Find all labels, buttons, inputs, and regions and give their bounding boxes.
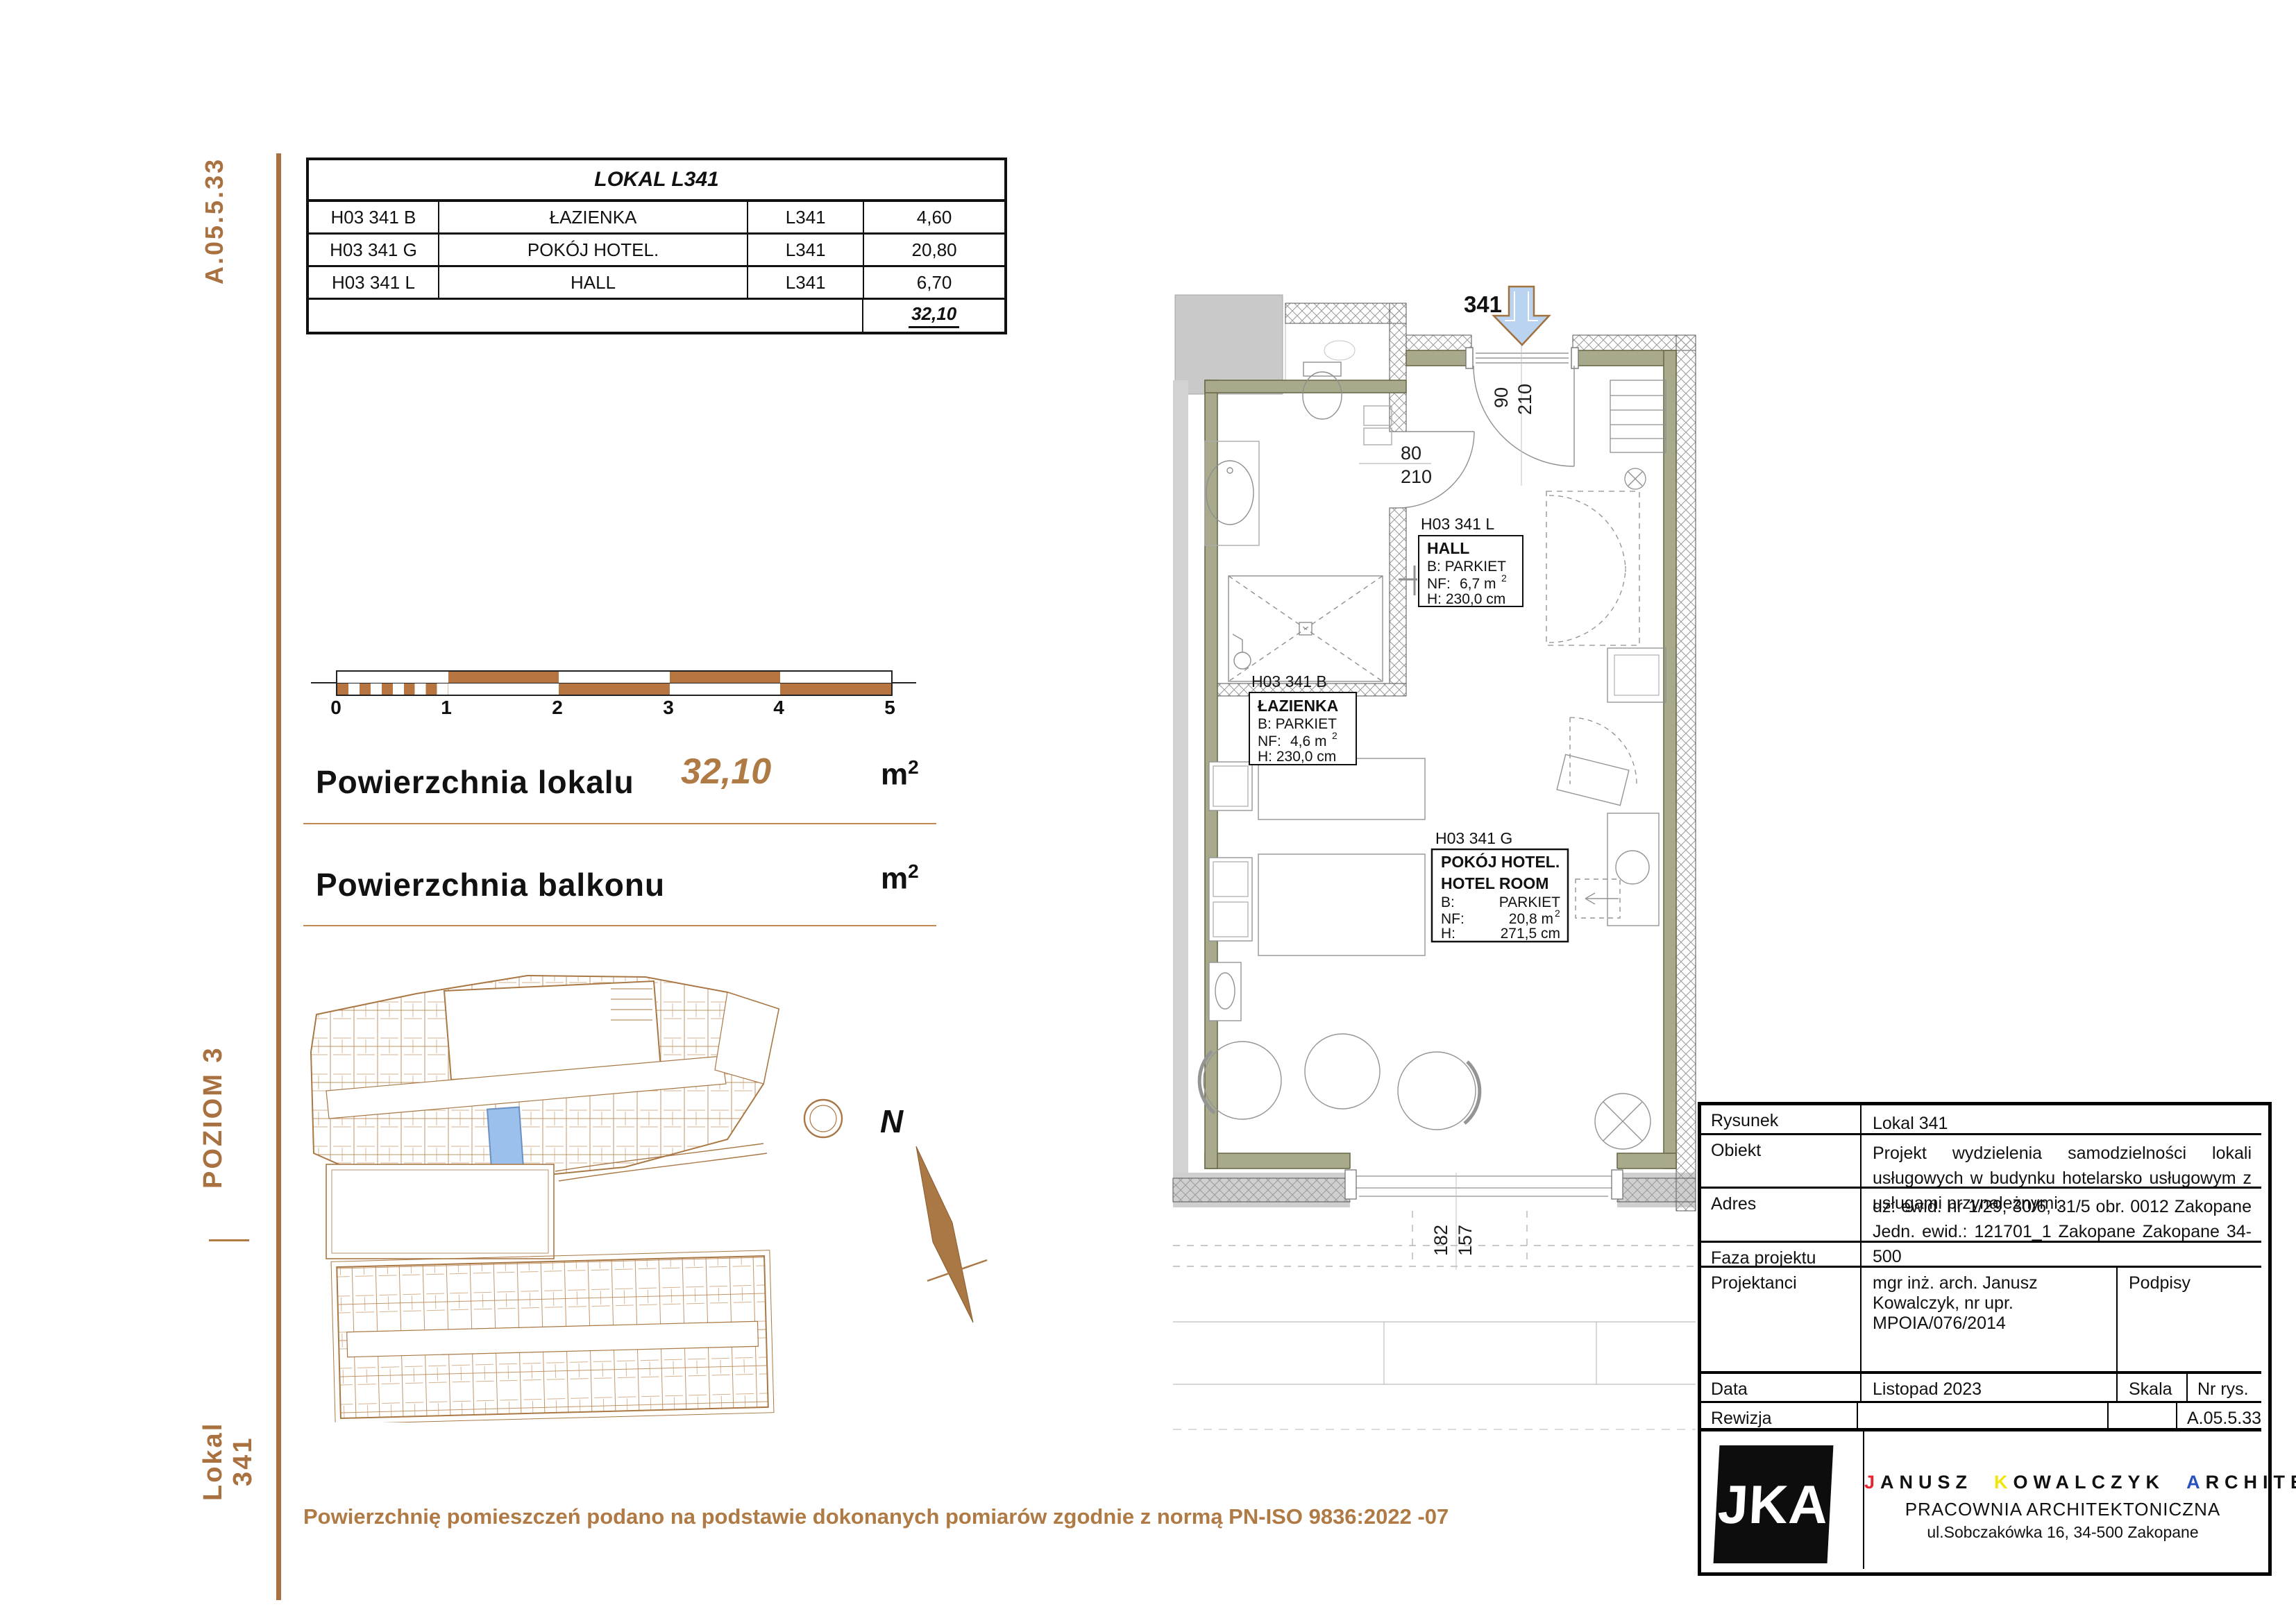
room-unit: L341 bbox=[748, 202, 864, 232]
balcony-door bbox=[1345, 1169, 1623, 1200]
svg-text:B:: B: bbox=[1441, 894, 1455, 910]
north-compass: N bbox=[880, 1103, 987, 1323]
jka-logo: JKA bbox=[1714, 1445, 1834, 1563]
north-label: N bbox=[880, 1103, 904, 1139]
divider bbox=[303, 925, 936, 926]
room-area: 20,80 bbox=[864, 235, 1004, 265]
dim-bath-width: 80 bbox=[1401, 443, 1421, 464]
dim-entry-height: 210 bbox=[1514, 384, 1535, 415]
title-row-value: Projekt wydzielenia samodzielności lokal… bbox=[1862, 1135, 2261, 1187]
entrance-arrow-icon bbox=[1494, 287, 1549, 345]
room-code: H03 341 L bbox=[309, 267, 439, 298]
title-row-label: Rysunek bbox=[1701, 1105, 1862, 1133]
scale-label: Skala bbox=[2118, 1374, 2188, 1401]
designer-value: mgr inż. arch. Janusz Kowalczyk, nr upr.… bbox=[1862, 1268, 2118, 1371]
room-area: 4,60 bbox=[864, 202, 1004, 232]
svg-text:H: 230,0 cm: H: 230,0 cm bbox=[1258, 749, 1336, 765]
drawing-number-vertical: A.05.5.33 bbox=[200, 151, 229, 290]
rooms-table-title: LOKAL L341 bbox=[309, 160, 1004, 202]
svg-text:20,8 m: 20,8 m bbox=[1509, 911, 1553, 927]
svg-text:2: 2 bbox=[1332, 730, 1337, 741]
scale-tick: 5 bbox=[884, 697, 895, 719]
architect-name: JANUSZ KOWALCZYK ARCHITEKT bbox=[1864, 1472, 2261, 1493]
room-area: 6,70 bbox=[864, 267, 1004, 298]
site-upper-wing bbox=[311, 976, 779, 1181]
scale-tick: 3 bbox=[663, 697, 674, 719]
svg-text:PARKIET: PARKIET bbox=[1499, 894, 1560, 910]
svg-text:2: 2 bbox=[1555, 908, 1560, 919]
svg-text:H03 341 B: H03 341 B bbox=[1251, 672, 1327, 690]
scale-tick: 2 bbox=[552, 697, 563, 719]
total-area: 32,10 bbox=[909, 303, 959, 328]
area-local-unit: m2 bbox=[881, 756, 919, 792]
dim-entry-width: 90 bbox=[1491, 387, 1512, 408]
room-name: HALL bbox=[439, 267, 748, 298]
left-rail-dash bbox=[209, 1239, 249, 1241]
entrance-marker: 341 bbox=[1464, 287, 1549, 345]
divider bbox=[303, 823, 936, 824]
drawing-no-label: Nr rys. bbox=[2188, 1374, 2261, 1401]
room-label-hotel-room: H03 341 G POKÓJ HOTEL. HOTEL ROOM B: PAR… bbox=[1432, 829, 1568, 942]
firm-line2: PRACOWNIA ARCHITEKTONICZNA bbox=[1864, 1499, 2261, 1520]
firm-info: JANUSZ KOWALCZYK ARCHITEKT PRACOWNIA ARC… bbox=[1864, 1431, 2261, 1542]
svg-text:H:: H: bbox=[1441, 926, 1455, 942]
title-row-label: Rewizja bbox=[1701, 1403, 1858, 1428]
area-local-label: Powierzchnia lokalu bbox=[316, 763, 634, 801]
entrance-number: 341 bbox=[1464, 291, 1502, 317]
area-balcony-unit: m2 bbox=[881, 860, 919, 897]
area-balcony-label: Powierzchnia balkonu bbox=[316, 866, 665, 903]
room-code: H03 341 B bbox=[309, 202, 439, 232]
svg-text:B: PARKIET: B: PARKIET bbox=[1427, 559, 1506, 575]
title-row-value: dz. ewid. nr 1/29, 30/6, 31/5 obr. 0012 … bbox=[1862, 1189, 2261, 1241]
svg-text:NF:: NF: bbox=[1441, 911, 1464, 927]
room-unit: L341 bbox=[748, 235, 864, 265]
svg-text:H: 230,0 cm: H: 230,0 cm bbox=[1427, 591, 1505, 607]
rooms-table: LOKAL L341 H03 341 B ŁAZIENKA L341 4,60 … bbox=[306, 158, 1007, 334]
svg-text:HALL: HALL bbox=[1427, 539, 1469, 557]
title-row-value: Lokal 341 bbox=[1862, 1105, 2261, 1133]
svg-text:4,6 m: 4,6 m bbox=[1290, 733, 1327, 749]
title-row-label: Obiekt bbox=[1701, 1135, 1862, 1187]
kitchen-wardrobe bbox=[1546, 380, 1666, 784]
bedroom-furniture bbox=[1199, 754, 1659, 1149]
scale-tick: 1 bbox=[441, 697, 452, 719]
title-row-label: Data bbox=[1701, 1374, 1862, 1401]
svg-text:2: 2 bbox=[1501, 572, 1507, 584]
firm-line3: ul.Sobczakówka 16, 34-500 Zakopane bbox=[1864, 1523, 2261, 1542]
svg-text:HOTEL ROOM: HOTEL ROOM bbox=[1441, 874, 1548, 892]
signatures-label: Podpisy bbox=[2118, 1268, 2261, 1371]
title-block: Rysunek Lokal 341 Obiekt Projekt wydziel… bbox=[1698, 1102, 2272, 1576]
dim-balcony-width: 182 bbox=[1430, 1225, 1451, 1256]
site-round-feature bbox=[804, 1100, 842, 1137]
title-row-label: Adres bbox=[1701, 1189, 1862, 1241]
level-label-vertical: POZIOM 3 bbox=[199, 1044, 228, 1190]
dim-bath-height: 210 bbox=[1401, 466, 1432, 487]
room-name: POKÓJ HOTEL. bbox=[439, 235, 748, 265]
area-local-value: 32,10 bbox=[681, 751, 771, 792]
room-code: H03 341 G bbox=[309, 235, 439, 265]
svg-text:6,7 m: 6,7 m bbox=[1460, 576, 1496, 592]
site-lower-wing bbox=[331, 1250, 774, 1422]
table-row: H03 341 G POKÓJ HOTEL. L341 20,80 bbox=[309, 235, 1004, 267]
bathroom-fixtures bbox=[1205, 362, 1417, 681]
unit-floor-plan: 80 210 90 210 182 157 341 H03 341 L HALL… bbox=[1145, 264, 1735, 1547]
terrace-lines bbox=[1173, 1173, 1696, 1429]
svg-text:POKÓJ HOTEL.: POKÓJ HOTEL. bbox=[1441, 852, 1560, 871]
svg-text:ŁAZIENKA: ŁAZIENKA bbox=[1258, 697, 1338, 715]
room-label-hall: H03 341 L HALL B: PARKIET NF: 6,7 m 2 H:… bbox=[1419, 515, 1523, 607]
date-value: Listopad 2023 bbox=[1862, 1374, 2118, 1401]
measurement-footnote: Powierzchnię pomieszczeń podano na podst… bbox=[303, 1504, 1449, 1529]
drawing-no-value: A.05.5.33 bbox=[2177, 1403, 2261, 1428]
site-highlighted-unit bbox=[487, 1107, 523, 1169]
scale-tick: 0 bbox=[330, 697, 341, 719]
table-total-row: 32,10 bbox=[309, 300, 1004, 332]
left-rail-divider bbox=[276, 153, 281, 1600]
site-courtyard bbox=[326, 1164, 554, 1259]
svg-text:H03 341 L: H03 341 L bbox=[1421, 515, 1494, 533]
unit-label-vertical: Lokal 341 bbox=[199, 1392, 258, 1531]
room-name: ŁAZIENKA bbox=[439, 202, 748, 232]
room-unit: L341 bbox=[748, 267, 864, 298]
table-row: H03 341 B ŁAZIENKA L341 4,60 bbox=[309, 202, 1004, 235]
svg-text:271,5 cm: 271,5 cm bbox=[1501, 926, 1560, 942]
svg-text:NF:: NF: bbox=[1258, 733, 1281, 749]
table-row: H03 341 L HALL L341 6,70 bbox=[309, 267, 1004, 300]
site-key-plan: N bbox=[292, 965, 1006, 1422]
scale-tick: 4 bbox=[773, 697, 784, 719]
drawing-sheet: A.05.5.33 POZIOM 3 Lokal 341 LOKAL L341 … bbox=[0, 0, 2296, 1623]
title-row-label: Faza projektu bbox=[1701, 1243, 1862, 1266]
svg-text:B: PARKIET: B: PARKIET bbox=[1258, 716, 1337, 732]
scale-bar bbox=[336, 670, 893, 696]
title-row-label: Projektanci bbox=[1701, 1268, 1862, 1371]
svg-text:NF:: NF: bbox=[1427, 576, 1451, 592]
dim-balcony-height: 157 bbox=[1455, 1225, 1476, 1256]
svg-text:H03 341 G: H03 341 G bbox=[1435, 829, 1512, 847]
